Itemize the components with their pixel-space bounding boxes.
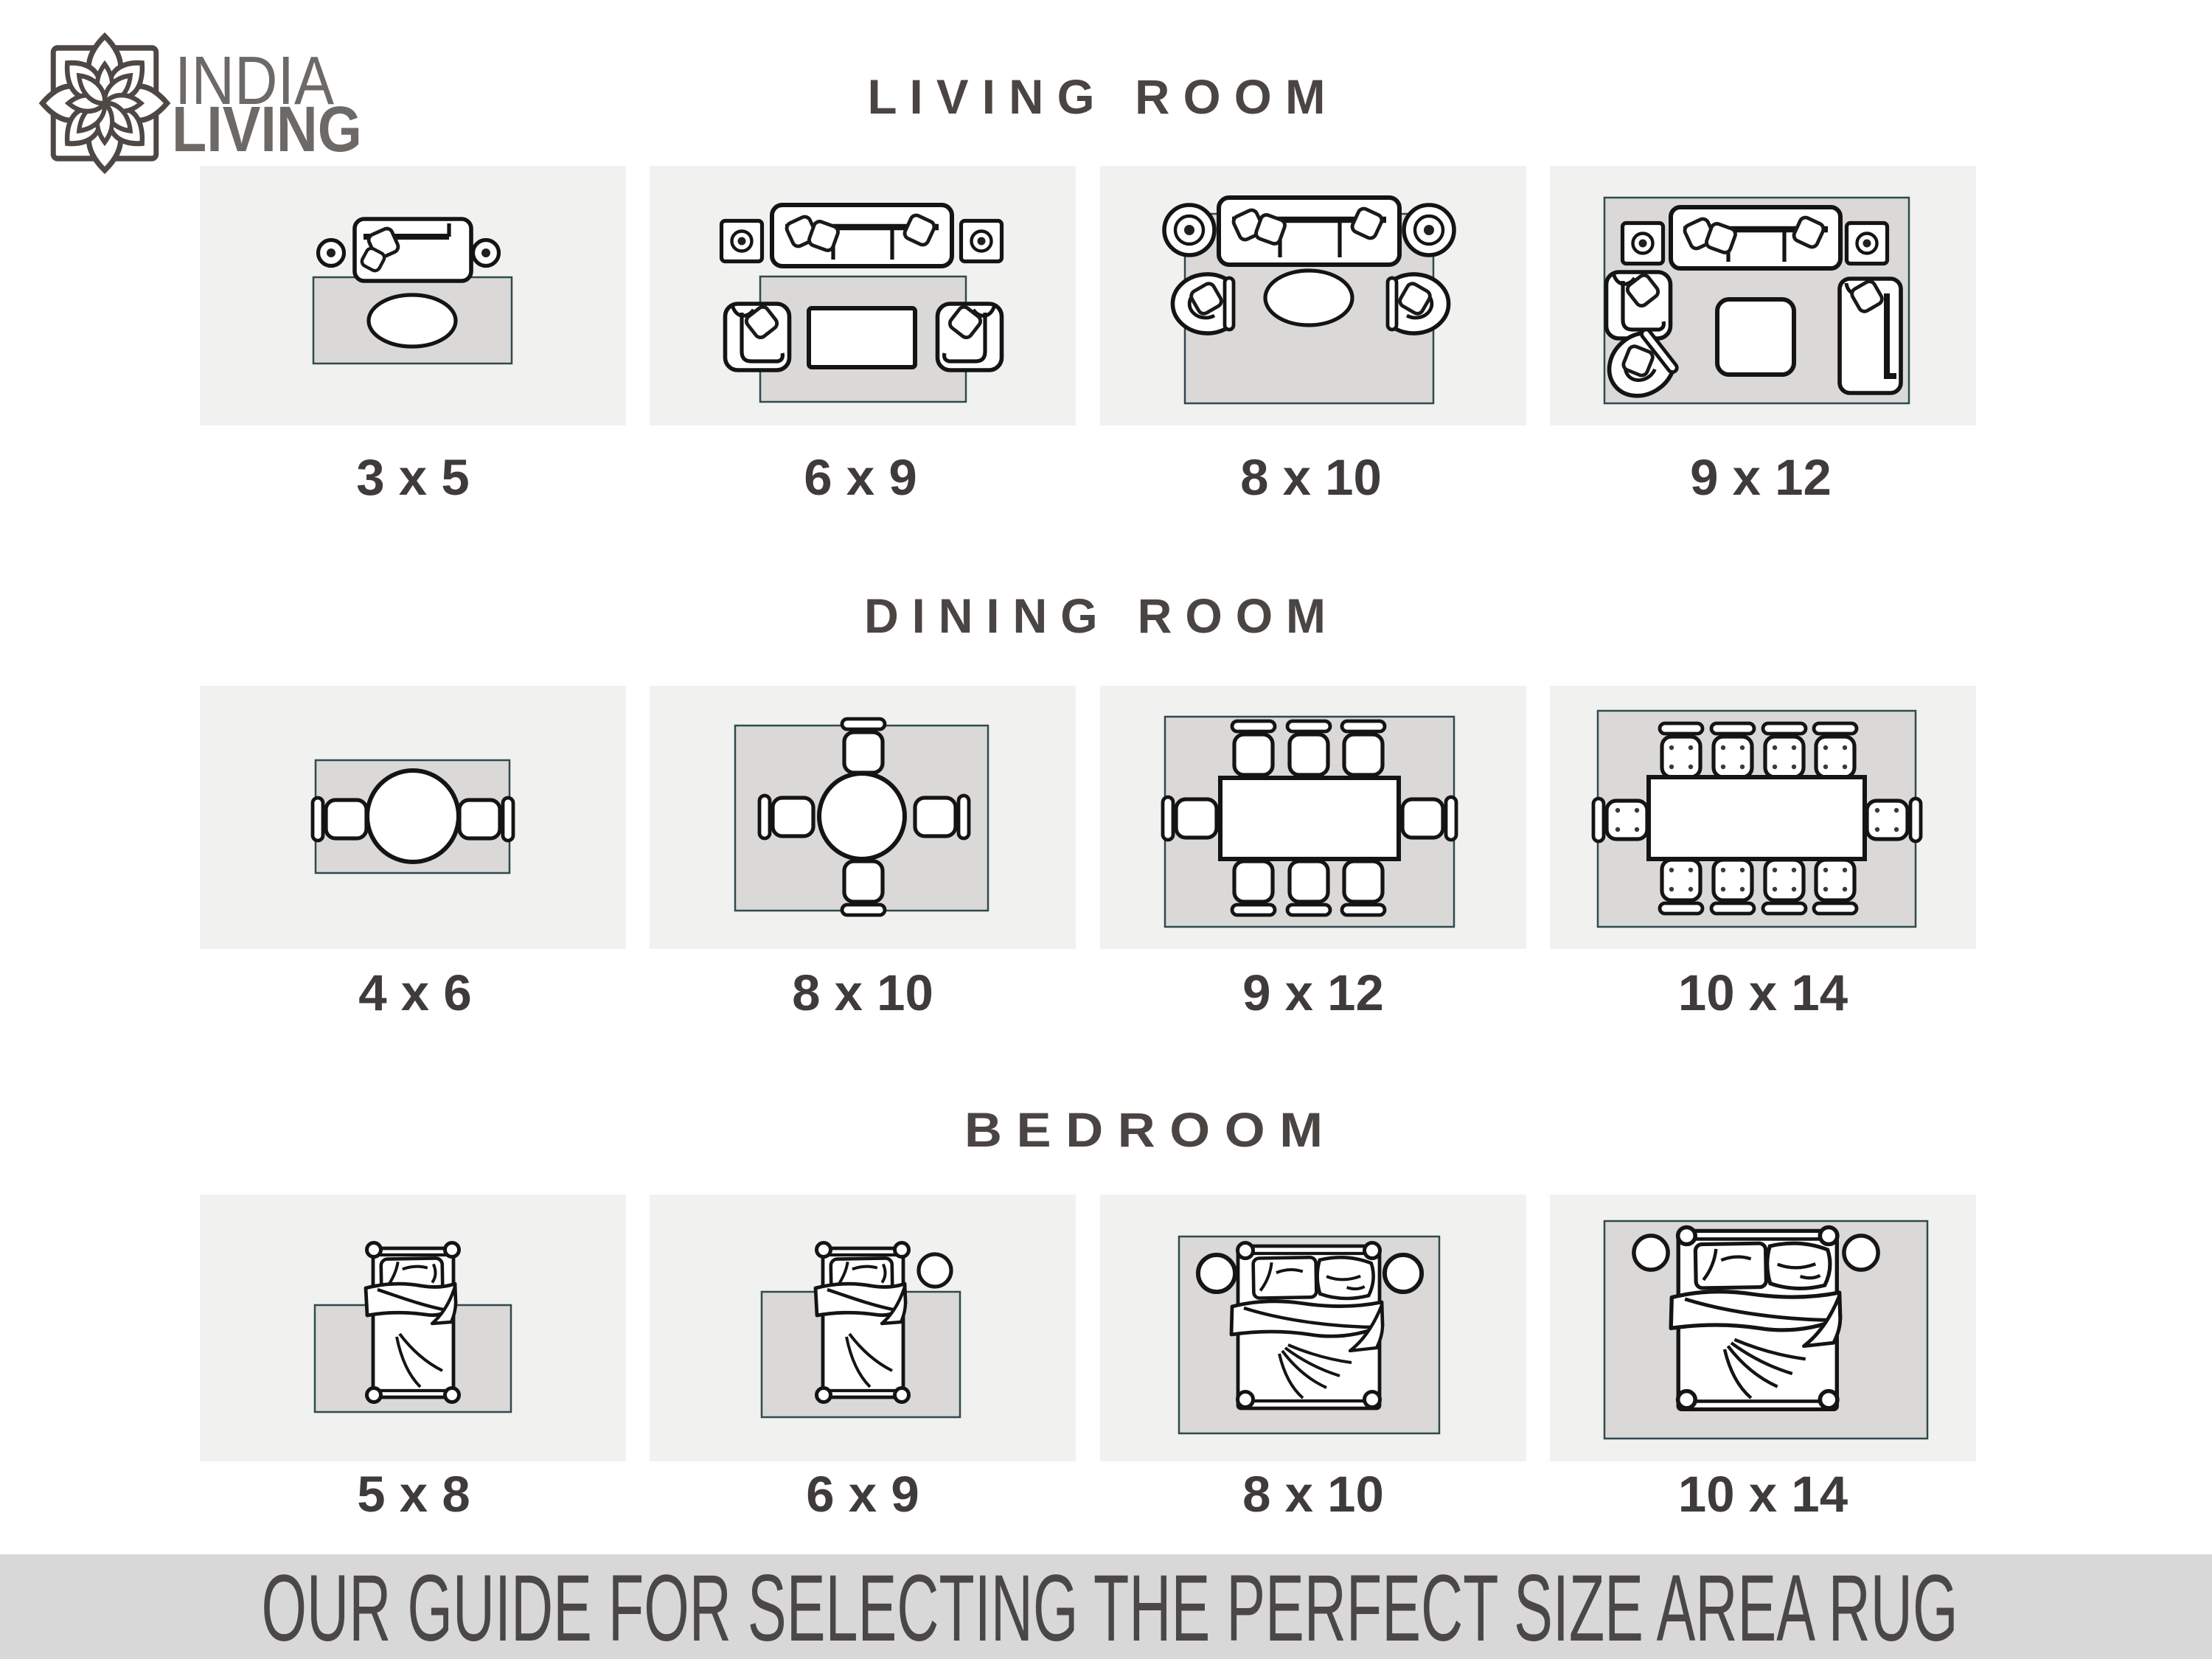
svg-text:9 x 12: 9 x 12: [1690, 449, 1832, 506]
svg-text:6 x 9: 6 x 9: [804, 449, 917, 506]
svg-text:8 x 10: 8 x 10: [1242, 1466, 1384, 1523]
svg-text:4 x 6: 4 x 6: [358, 964, 471, 1021]
svg-text:L I V I N G R O O M: L I V I N G R O O M: [868, 69, 1326, 124]
svg-text:OUR GUIDE FOR SELECTING THE PE: OUR GUIDE FOR SELECTING THE PERFECT SIZE…: [262, 1556, 1958, 1659]
svg-text:10 x 14: 10 x 14: [1678, 1466, 1848, 1523]
svg-text:LIVING: LIVING: [172, 94, 362, 165]
svg-text:8 x 10: 8 x 10: [792, 964, 933, 1021]
svg-text:9 x 12: 9 x 12: [1242, 964, 1384, 1021]
svg-text:10 x 14: 10 x 14: [1678, 964, 1848, 1021]
svg-text:5 x 8: 5 x 8: [357, 1466, 470, 1523]
svg-text:3 x 5: 3 x 5: [356, 449, 469, 506]
svg-text:D I N I N G R O O M: D I N I N G R O O M: [864, 588, 1326, 643]
svg-text:6 x 9: 6 x 9: [806, 1466, 919, 1523]
svg-text:B E D R O O M: B E D R O O M: [964, 1102, 1323, 1157]
svg-text:8 x 10: 8 x 10: [1240, 449, 1382, 506]
